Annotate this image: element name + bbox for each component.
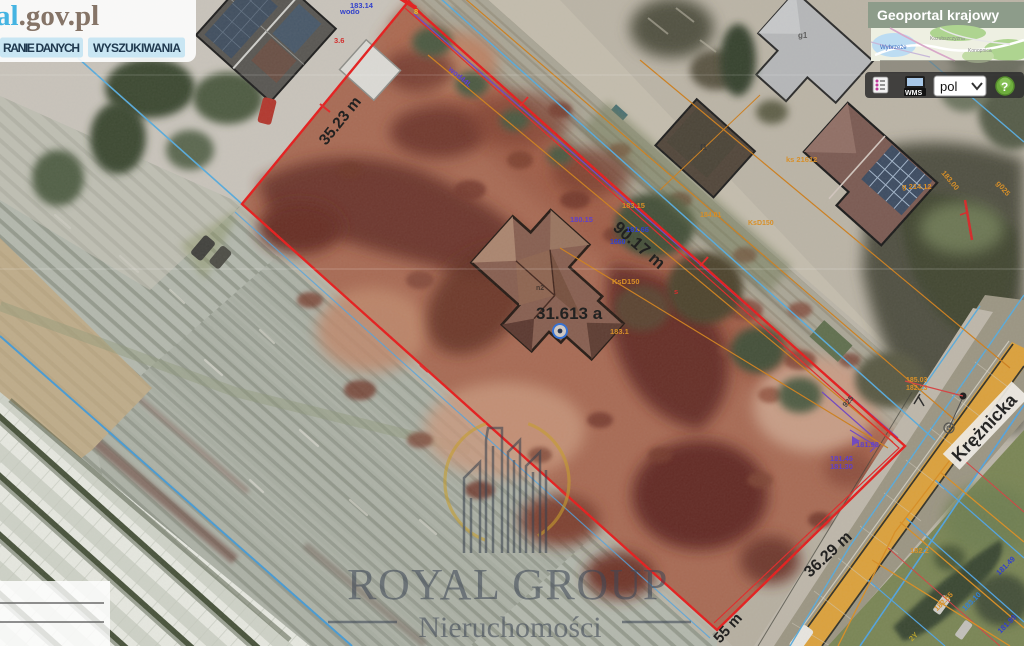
- svg-text:Geoportal krajowy: Geoportal krajowy: [877, 7, 999, 23]
- svg-text:WMS: WMS: [905, 90, 922, 97]
- svg-text:pol: pol: [940, 79, 957, 94]
- svg-text:?: ?: [1001, 80, 1008, 94]
- svg-text:WYSZUKIWANIA: WYSZUKIWANIA: [93, 41, 181, 55]
- svg-text:ROYAL GROUP: ROYAL GROUP: [347, 560, 669, 609]
- svg-text:Wybrzeże: Wybrzeże: [880, 45, 907, 51]
- svg-text:RANIE DANYCH: RANIE DANYCH: [3, 41, 80, 55]
- svg-text:Konopnica: Konopnica: [968, 48, 992, 54]
- svg-text:Nieruchomości: Nieruchomości: [418, 611, 601, 644]
- svg-text:Kozubszczyzna: Kozubszczyzna: [930, 36, 965, 42]
- svg-text:al.gov.pl: al.gov.pl: [0, 0, 99, 32]
